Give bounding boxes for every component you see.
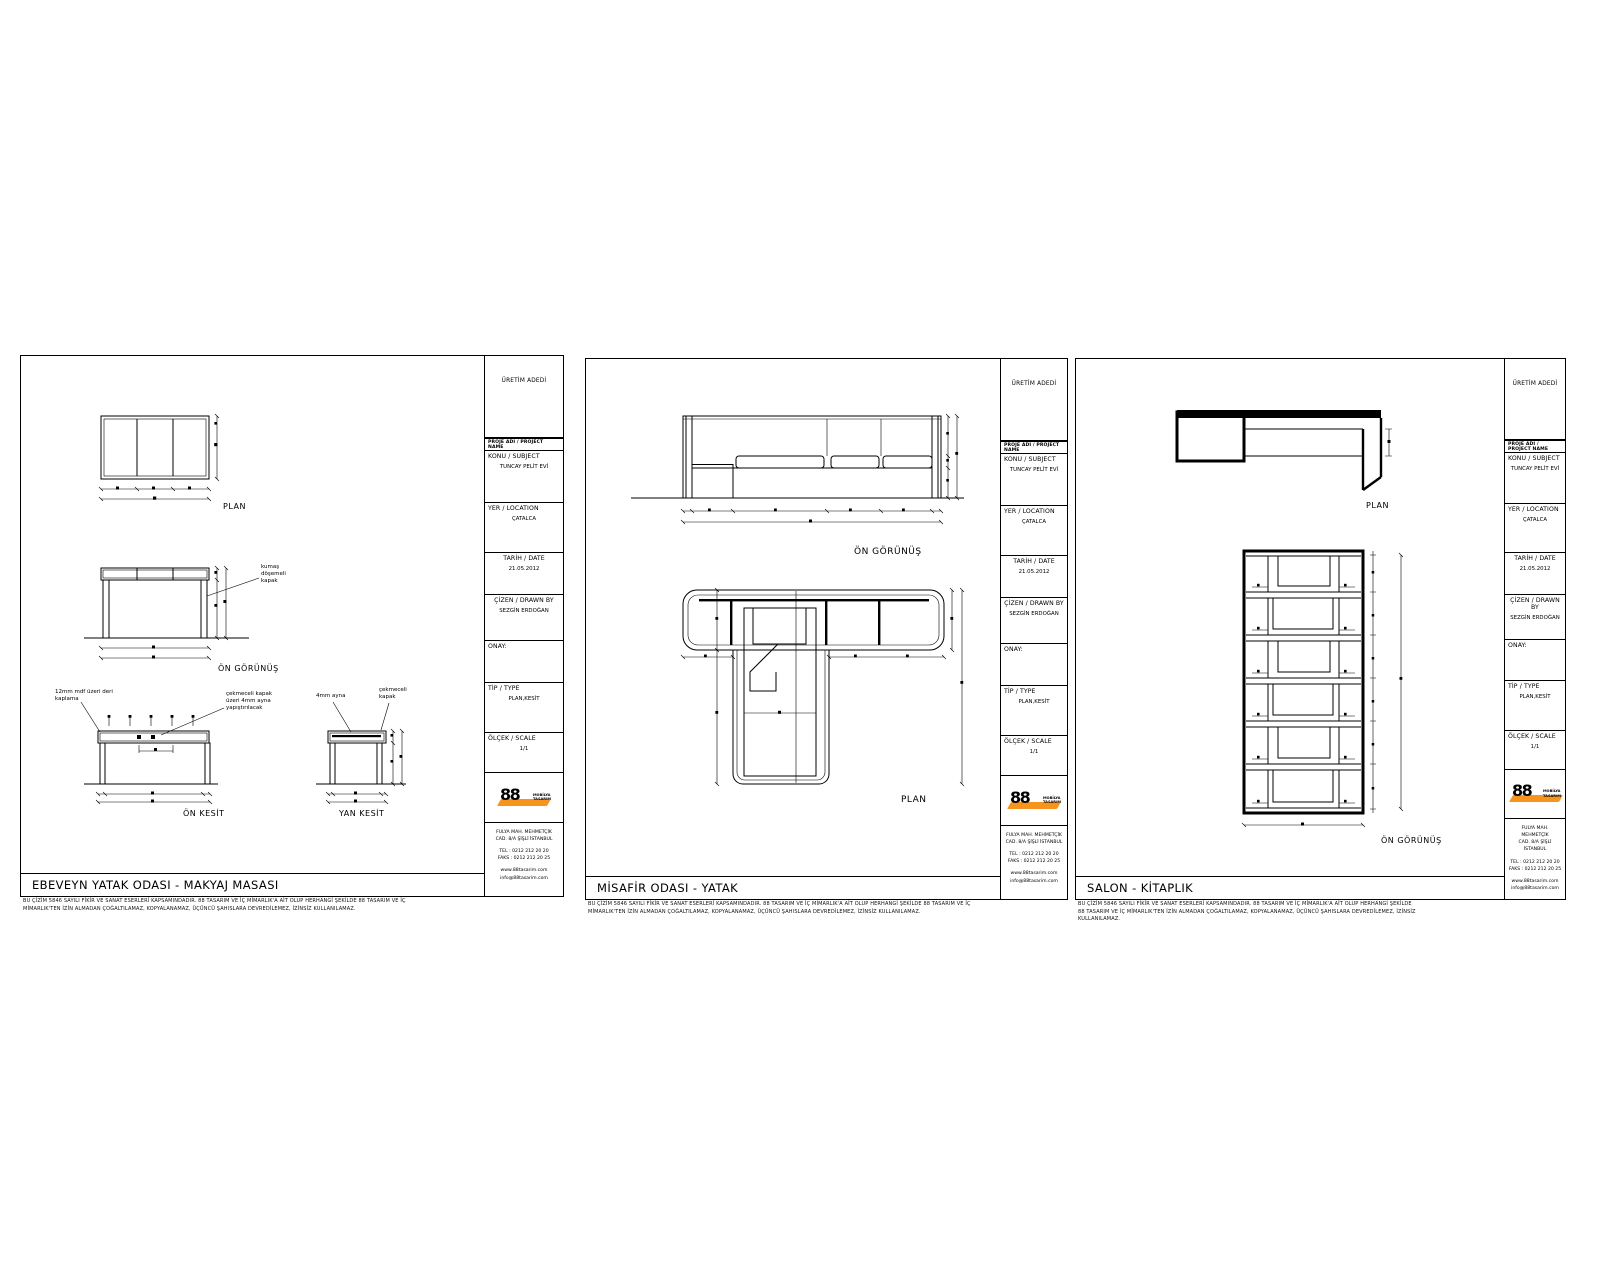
disclaimer-3: BU ÇİZİM 5846 SAYILI FİKİR VE SANAT ESER… bbox=[1078, 901, 1416, 924]
field-tarih: TARİH / DATE21.05.2012 bbox=[1505, 553, 1565, 594]
annotation-mdf: 12mm mdf üzeri deri bbox=[55, 689, 113, 695]
sheet-ebeveyn-makyaj-masasi: PLAN bbox=[20, 355, 564, 897]
label-plan: PLAN bbox=[1366, 501, 1389, 510]
field-olcek: ÖLÇEK / SCALE1/1 bbox=[485, 733, 563, 773]
sheet-title-1: EBEVEYN YATAK ODASI - MAKYAJ MASASI bbox=[21, 873, 484, 896]
logo-words: MOBİLYATASARIM bbox=[1043, 796, 1061, 805]
annotation-cekmeceli-kapak: çekmeceli kapak bbox=[226, 691, 273, 697]
field-tarih: TARİH / DATE21.05.2012 bbox=[485, 553, 563, 595]
logo-88: 88 MOBİLYATASARIM bbox=[1001, 776, 1067, 826]
view-plan-bed: PLAN bbox=[681, 588, 964, 805]
production-note: ÜRETİM ADEDİ bbox=[1505, 359, 1565, 440]
field-konu: KONU / SUBJECTTUNCAY PELİT EVİ bbox=[485, 451, 563, 503]
field-yer: YER / LOCATIONÇATALCA bbox=[485, 503, 563, 553]
svg-text:yapıştırılacak: yapıştırılacak bbox=[226, 705, 263, 711]
address-block: FULYA MAH. MEHMETÇİKCAD. 8/A ŞİŞLİ İSTAN… bbox=[485, 823, 563, 896]
field-tarih: TARİH / DATE21.05.2012 bbox=[1001, 556, 1067, 598]
drawing-svg-makyaj-masasi: PLAN bbox=[21, 356, 484, 874]
svg-text:döşemeli: döşemeli bbox=[261, 571, 286, 577]
sheet-title-3: SALON - KİTAPLIK bbox=[1076, 876, 1504, 899]
label-on-gorunus: ÖN GÖRÜNÜŞ bbox=[218, 663, 279, 673]
titleblock-1: ÜRETİM ADEDİ PROJE ADI / PROJECT NAME KO… bbox=[485, 356, 563, 896]
logo-number: 88 bbox=[1010, 790, 1029, 806]
field-tip: TİP / TYPEPLAN,KESİT bbox=[485, 683, 563, 733]
field-cizen: ÇİZEN / DRAWN BYSEZGİN ERDOĞAN bbox=[485, 595, 563, 641]
view-plan-table: PLAN bbox=[99, 414, 246, 511]
project-name-header: PROJE ADI / PROJECT NAME bbox=[1001, 441, 1067, 454]
field-tip: TİP / TYPEPLAN,KESİT bbox=[1505, 681, 1565, 730]
field-cizen: ÇİZEN / DRAWN BYSEZGİN ERDOĞAN bbox=[1505, 595, 1565, 640]
field-konu: KONU / SUBJECTTUNCAY PELİT EVİ bbox=[1001, 454, 1067, 506]
titleblock-3: ÜRETİM ADEDİ PROJE ADI / PROJECT NAME KO… bbox=[1505, 359, 1565, 899]
drawing-area-1: PLAN bbox=[21, 356, 485, 896]
page-canvas: PLAN bbox=[0, 0, 1600, 1280]
address-block: FULYA MAH. MEHMETÇİKCAD. 8/A ŞİŞLİ İSTAN… bbox=[1505, 819, 1565, 899]
project-name-header: PROJE ADI / PROJECT NAME bbox=[1505, 440, 1565, 453]
drawing-svg-kitaplik: PLAN bbox=[1076, 359, 1507, 877]
sheet-salon-kitaplik: PLAN bbox=[1075, 358, 1566, 900]
drawing-svg-yatak: ÖN GÖRÜNÜŞ bbox=[586, 359, 1001, 877]
titleblock-2: ÜRETİM ADEDİ PROJE ADI / PROJECT NAME KO… bbox=[1001, 359, 1067, 899]
logo-number: 88 bbox=[1512, 783, 1531, 799]
logo-number: 88 bbox=[500, 787, 519, 803]
logo-words: MOBİLYATASARIM bbox=[533, 793, 551, 802]
logo-words: MOBİLYATASARIM bbox=[1543, 789, 1561, 798]
sheet-misafir-yatak: ÖN GÖRÜNÜŞ bbox=[585, 358, 1068, 900]
project-name-header: PROJE ADI / PROJECT NAME bbox=[485, 438, 563, 451]
view-plan-desk: PLAN bbox=[1177, 410, 1392, 510]
drawing-area-3: PLAN bbox=[1076, 359, 1505, 899]
field-yer: YER / LOCATIONÇATALCA bbox=[1505, 504, 1565, 553]
view-front-table: kumaş döşemeli kapak ÖN GÖRÜNÜŞ bbox=[84, 564, 286, 673]
label-yan-kesit: YAN KESİT bbox=[338, 808, 384, 818]
svg-text:kapak: kapak bbox=[261, 578, 278, 584]
logo-88: 88 MOBİLYATASARIM bbox=[485, 773, 563, 823]
annotation-ayna: 4mm ayna bbox=[316, 693, 345, 699]
disclaimer-2: BU ÇİZİM 5846 SAYILI FİKİR VE SANAT ESER… bbox=[588, 901, 971, 916]
disclaimer-1: BU ÇİZİM 5846 SAYILI FİKİR VE SANAT ESER… bbox=[23, 898, 406, 913]
production-note: ÜRETİM ADEDİ bbox=[485, 356, 563, 438]
view-on-kesit: 12mm mdf üzeri deri kaplama çekmeceli ka… bbox=[55, 689, 273, 818]
field-tip: TİP / TYPEPLAN,KESİT bbox=[1001, 686, 1067, 736]
field-onay: ONAY: bbox=[485, 641, 563, 683]
field-olcek: ÖLÇEK / SCALE1/1 bbox=[1505, 731, 1565, 770]
label-on-gorunus: ÖN GÖRÜNÜŞ bbox=[854, 546, 922, 557]
field-onay: ONAY: bbox=[1001, 644, 1067, 686]
view-yan-kesit: 4mm ayna çekmeceli kapak YAN KESİT bbox=[316, 687, 407, 818]
label-plan: PLAN bbox=[223, 502, 246, 511]
drawing-area-2: ÖN GÖRÜNÜŞ bbox=[586, 359, 1001, 899]
sheet-title-2: MİSAFİR ODASI - YATAK bbox=[586, 876, 1000, 899]
production-note: ÜRETİM ADEDİ bbox=[1001, 359, 1067, 441]
field-onay: ONAY: bbox=[1505, 640, 1565, 681]
view-front-bed: ÖN GÖRÜNÜŞ bbox=[631, 414, 964, 557]
logo-88: 88 MOBİLYATASARIM bbox=[1505, 770, 1565, 819]
label-on-gorunus: ÖN GÖRÜNÜŞ bbox=[1381, 835, 1442, 845]
label-plan: PLAN bbox=[901, 795, 927, 805]
annotation-cekmeceli: çekmeceli bbox=[379, 687, 407, 693]
svg-text:üzeri 4mm ayna: üzeri 4mm ayna bbox=[226, 698, 271, 704]
address-block: FULYA MAH. MEHMETÇİKCAD. 8/A ŞİŞLİ İSTAN… bbox=[1001, 826, 1067, 899]
field-cizen: ÇİZEN / DRAWN BYSEZGİN ERDOĞAN bbox=[1001, 598, 1067, 644]
view-front-bookshelf: ÖN GÖRÜNÜŞ bbox=[1242, 551, 1442, 845]
svg-text:kapak: kapak bbox=[379, 694, 396, 700]
field-konu: KONU / SUBJECTTUNCAY PELİT EVİ bbox=[1505, 453, 1565, 504]
field-yer: YER / LOCATIONÇATALCA bbox=[1001, 506, 1067, 556]
svg-text:kaplama: kaplama bbox=[55, 696, 79, 702]
label-on-kesit: ÖN KESİT bbox=[183, 808, 224, 818]
field-olcek: ÖLÇEK / SCALE1/1 bbox=[1001, 736, 1067, 776]
annotation-kumas: kumaş bbox=[261, 564, 279, 570]
